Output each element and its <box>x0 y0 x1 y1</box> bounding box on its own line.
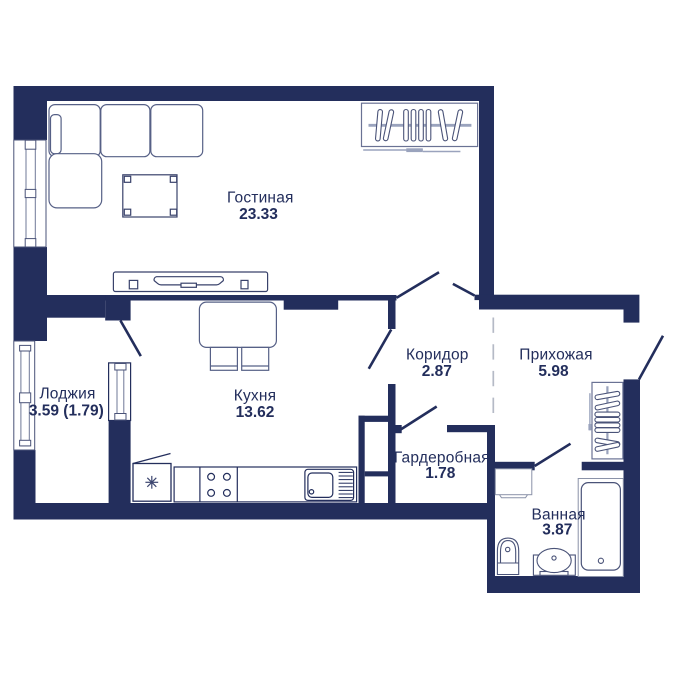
svg-text:23.33: 23.33 <box>239 206 278 223</box>
svg-text:Гостиная: Гостиная <box>227 190 294 207</box>
svg-text:5.98: 5.98 <box>538 363 569 380</box>
svg-text:13.62: 13.62 <box>236 404 275 421</box>
svg-text:Лоджия: Лоджия <box>39 386 95 403</box>
svg-text:3.59 (1.79): 3.59 (1.79) <box>29 403 104 420</box>
svg-text:3.87: 3.87 <box>542 522 572 539</box>
svg-text:1.78: 1.78 <box>425 465 456 482</box>
svg-text:Кухня: Кухня <box>234 388 276 405</box>
svg-text:Гардеробная: Гардеробная <box>394 450 490 467</box>
svg-text:Прихожая: Прихожая <box>519 347 592 364</box>
svg-text:Коридор: Коридор <box>406 347 469 364</box>
svg-text:2.87: 2.87 <box>422 363 452 380</box>
